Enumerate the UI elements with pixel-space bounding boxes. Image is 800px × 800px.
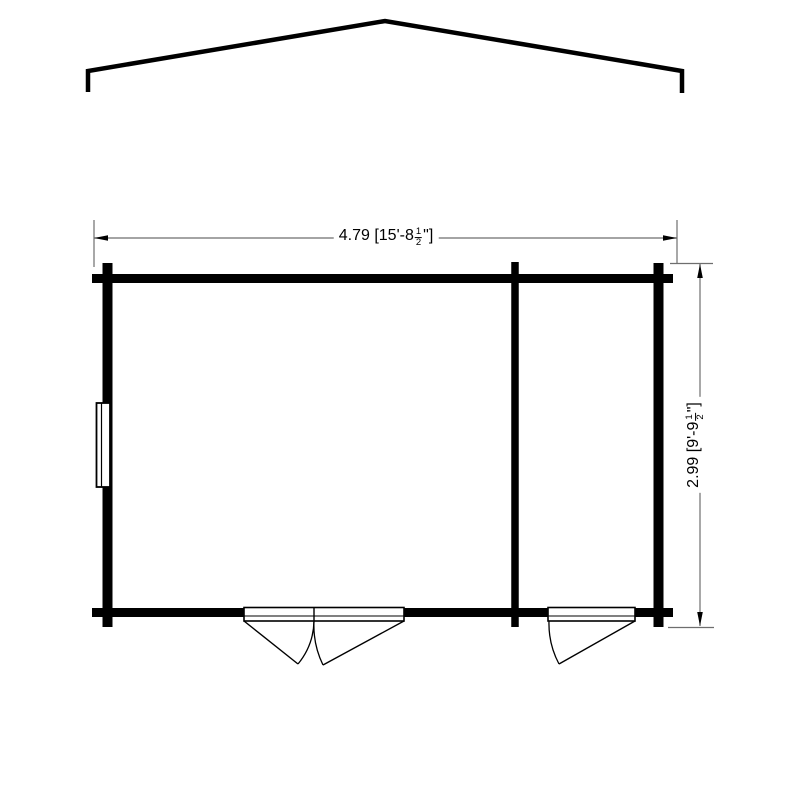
v-dimension-fraction: 12 xyxy=(685,413,707,420)
double-door-frame xyxy=(244,608,404,622)
drawing-canvas xyxy=(0,0,800,800)
h-fraction-denominator: 2 xyxy=(416,239,421,249)
vertical-dimension-label: 2.99 [9'-912"] xyxy=(682,397,706,493)
v-dimension-arrow-top xyxy=(697,264,703,278)
double-door-right-swing-arc xyxy=(314,621,323,665)
h-dimension-arrow-left xyxy=(94,235,108,241)
h-dimension-text-prefix: 4.79 [15'-8 xyxy=(339,228,414,244)
v-dimension-text-prefix: 2.99 [9'-9 xyxy=(686,422,702,488)
h-dimension-fraction: 12 xyxy=(415,227,422,249)
single-door-swing-arc xyxy=(549,621,559,664)
single-door xyxy=(548,608,635,665)
v-dimension-text-suffix: "] xyxy=(686,402,702,412)
double-door-left-leaf xyxy=(244,621,298,664)
v-fraction-denominator: 2 xyxy=(697,414,707,419)
single-door-leaf xyxy=(559,621,635,664)
double-door-left-swing-arc xyxy=(298,621,314,664)
h-dimension-arrow-right xyxy=(663,235,677,241)
v-dimension-arrow-bottom xyxy=(697,612,703,626)
floor-plan-drawing: 4.79 [15'-812"] 2.99 [9'-912"] xyxy=(0,0,800,800)
single-door-frame xyxy=(548,608,635,622)
dimension-arrowheads xyxy=(94,235,703,626)
h-dimension-text-suffix: "] xyxy=(423,228,433,244)
horizontal-dimension-label: 4.79 [15'-812"] xyxy=(334,224,439,248)
roof-outline xyxy=(88,21,682,93)
window xyxy=(97,403,111,487)
double-door xyxy=(244,608,404,666)
walls xyxy=(92,262,673,627)
double-door-right-leaf xyxy=(323,621,404,665)
window-frame xyxy=(97,403,111,487)
